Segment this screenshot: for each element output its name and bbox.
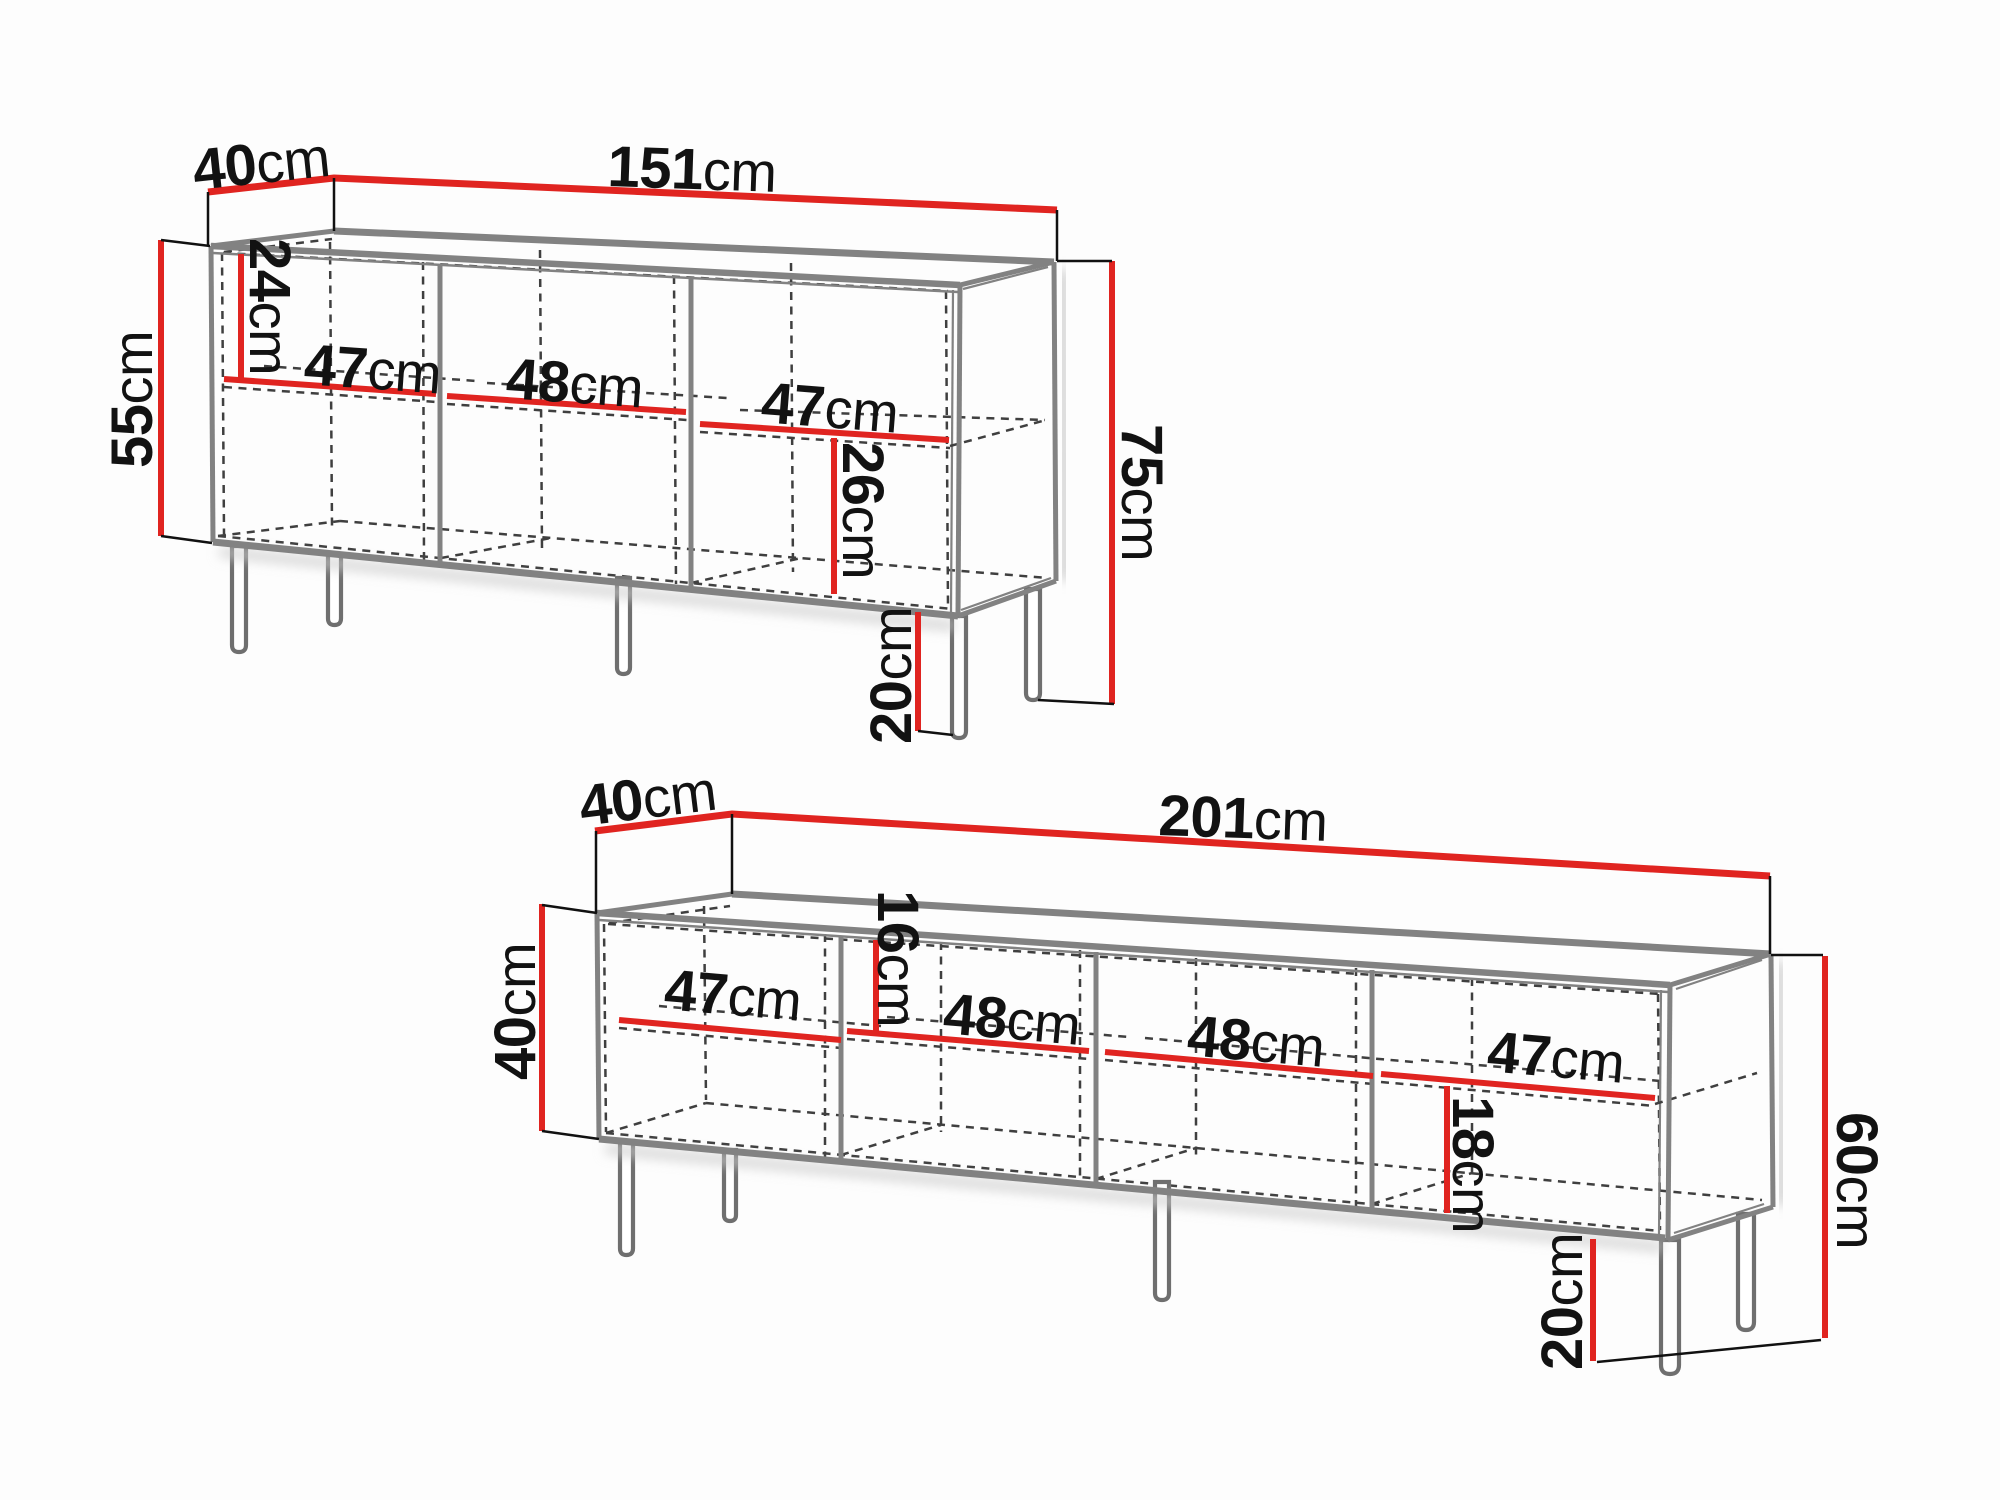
svg-text:48cm: 48cm [1185, 1003, 1327, 1080]
svg-text:26cm: 26cm [830, 442, 895, 579]
svg-text:16cm: 16cm [865, 890, 930, 1027]
svg-text:24cm: 24cm [237, 238, 302, 375]
svg-text:151cm: 151cm [607, 134, 778, 205]
svg-text:60cm: 60cm [1824, 1112, 1889, 1249]
svg-text:20cm: 20cm [1530, 1233, 1595, 1370]
svg-text:20cm: 20cm [859, 607, 924, 744]
svg-text:75cm: 75cm [1109, 424, 1174, 561]
svg-text:40cm: 40cm [483, 943, 548, 1080]
svg-text:48cm: 48cm [941, 981, 1083, 1058]
svg-text:47cm: 47cm [662, 957, 804, 1034]
svg-text:47cm: 47cm [302, 332, 443, 406]
svg-text:47cm: 47cm [759, 370, 901, 446]
svg-text:55cm: 55cm [100, 331, 165, 468]
svg-text:47cm: 47cm [1485, 1019, 1627, 1096]
svg-text:18cm: 18cm [1440, 1096, 1505, 1233]
svg-text:48cm: 48cm [504, 346, 645, 420]
svg-text:201cm: 201cm [1158, 783, 1329, 854]
